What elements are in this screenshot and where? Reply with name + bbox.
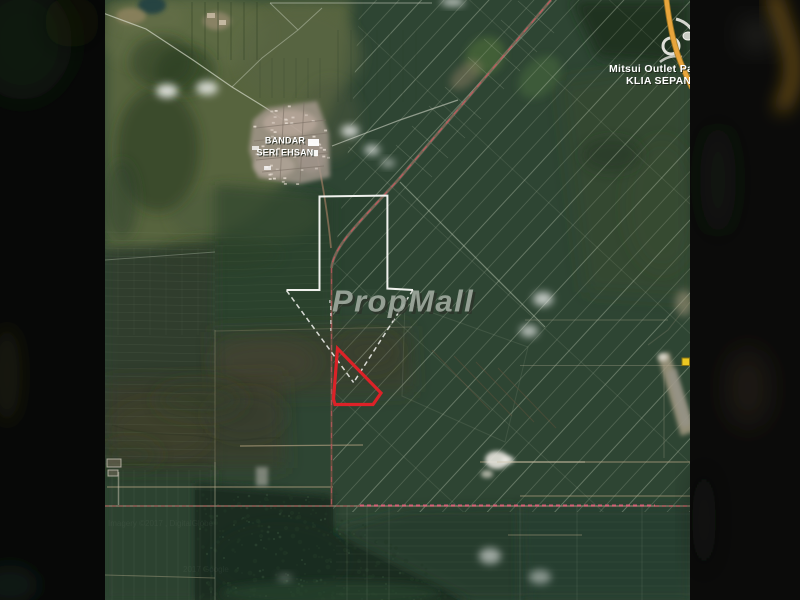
svg-text:PropMall: PropMall bbox=[332, 284, 474, 319]
svg-text:BANDAR: BANDAR bbox=[265, 136, 305, 146]
svg-text:SERI EHSAN: SERI EHSAN bbox=[256, 148, 313, 158]
svg-text:Imagery ©2017 , DigitalGlobe: Imagery ©2017 , DigitalGlobe bbox=[108, 519, 214, 528]
svg-text:KLIA SEPAN: KLIA SEPAN bbox=[626, 75, 691, 87]
svg-text:Mitsui Outlet Pa: Mitsui Outlet Pa bbox=[609, 63, 693, 75]
svg-text:2017 Google: 2017 Google bbox=[183, 565, 229, 574]
